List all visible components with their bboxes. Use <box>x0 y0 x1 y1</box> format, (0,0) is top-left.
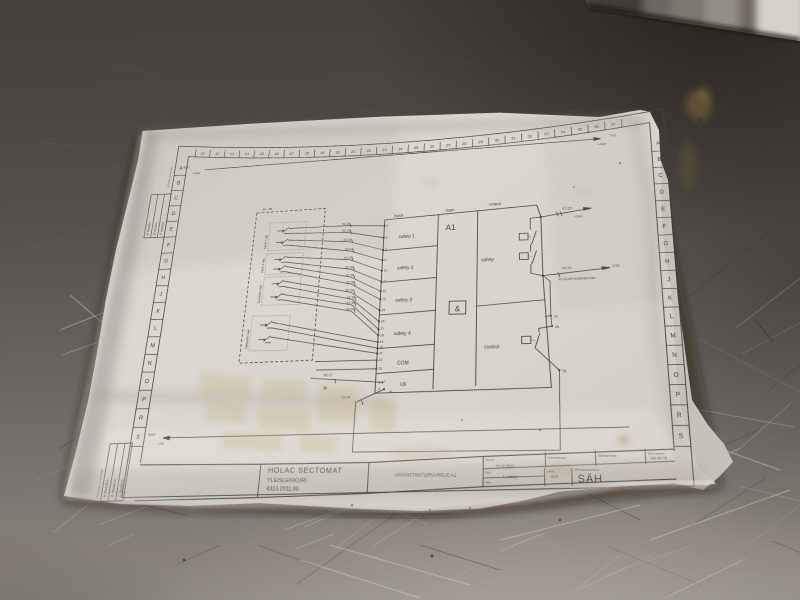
svg-text:33: 33 <box>544 132 549 137</box>
svg-text:SÄH: SÄH <box>577 472 603 486</box>
svg-text:output: output <box>489 201 501 206</box>
svg-text:29: 29 <box>478 140 483 145</box>
svg-text:C: C <box>658 172 664 178</box>
svg-text:X2 33: X2 33 <box>344 255 354 260</box>
svg-text:N: N <box>672 351 677 358</box>
svg-text:X2 31: X2 31 <box>343 237 353 242</box>
svg-text:VAHVISTIN/TURVARELE A1: VAHVISTIN/TURVARELE A1 <box>395 472 457 478</box>
svg-text:COM: COM <box>397 361 409 366</box>
svg-text:D: D <box>659 189 664 195</box>
svg-text:22: 22 <box>366 149 371 153</box>
svg-text:G: G <box>663 240 669 246</box>
svg-text:Suunn: Suunn <box>485 459 495 462</box>
svg-text:X2 40: X2 40 <box>345 306 355 311</box>
svg-text:17: 17 <box>289 152 294 156</box>
svg-text:O: O <box>673 371 679 378</box>
svg-text:M: M <box>670 332 676 339</box>
svg-text:L: L <box>670 313 675 320</box>
svg-text:34: 34 <box>561 130 566 135</box>
svg-text:A: A <box>656 140 660 146</box>
svg-text:16: 16 <box>274 152 279 156</box>
svg-text:15: 15 <box>259 152 264 156</box>
svg-text:1/16: 1/16 <box>612 263 620 268</box>
svg-text:27: 27 <box>446 143 451 148</box>
svg-text:X2 35: X2 35 <box>345 272 355 277</box>
svg-text:32: 32 <box>527 134 532 139</box>
svg-text:control: control <box>484 344 499 350</box>
svg-text:E: E <box>661 206 666 212</box>
svg-text:X2 29: X2 29 <box>342 221 351 226</box>
svg-text:safety 3: safety 3 <box>395 298 412 303</box>
svg-text:R: R <box>677 412 682 419</box>
svg-text:A1: A1 <box>445 224 456 233</box>
svg-text:36: 36 <box>594 125 599 130</box>
svg-text:X2 39: X2 39 <box>346 300 356 305</box>
svg-text:X2 36: X2 36 <box>346 280 356 285</box>
svg-text:&: & <box>455 306 460 314</box>
svg-text:11: 11 <box>200 151 205 155</box>
svg-text:5/37: 5/37 <box>183 165 190 169</box>
svg-text:35: 35 <box>577 127 582 132</box>
svg-text:26: 26 <box>430 144 435 149</box>
svg-text:X2 44: X2 44 <box>341 394 351 399</box>
svg-text:S: S <box>678 432 683 439</box>
svg-text:6/14: 6/14 <box>551 475 559 479</box>
svg-text:K: K <box>668 294 673 301</box>
svg-text:12: 12 <box>215 151 220 155</box>
svg-text:31: 31 <box>511 136 516 141</box>
svg-text:5/37: 5/37 <box>148 432 156 437</box>
svg-text:37: 37 <box>611 122 616 127</box>
svg-text:X2 34: X2 34 <box>345 265 355 270</box>
svg-text:J: J <box>667 276 671 282</box>
svg-text:X2 38: X2 38 <box>346 295 356 300</box>
svg-text:28: 28 <box>462 141 467 146</box>
svg-text:input: input <box>394 213 403 218</box>
svg-text:Kokonaisuus: Kokonaisuus <box>547 457 567 460</box>
svg-text:14: 14 <box>244 152 249 156</box>
svg-text:4313.2011.00: 4313.2011.00 <box>266 485 300 492</box>
svg-text:H: H <box>665 258 670 264</box>
svg-text:T. Laitala: T. Laitala <box>502 475 517 480</box>
svg-text:B: B <box>657 156 661 162</box>
svg-text:19: 19 <box>320 151 325 155</box>
svg-text:safety: safety <box>481 257 494 262</box>
svg-text:25: 25 <box>414 146 419 151</box>
svg-text:YLEISLEIKKURI: YLEISLEIKKURI <box>267 476 307 483</box>
svg-text:U6: U6 <box>400 382 407 387</box>
svg-text:Sähköpositio: Sähköpositio <box>598 454 618 458</box>
svg-text:+24V: +24V <box>574 214 583 219</box>
svg-text:-0V: -0V <box>158 441 165 446</box>
svg-text:Piirt: Piirt <box>485 471 491 475</box>
svg-text:24: 24 <box>398 147 403 151</box>
svg-text:21: 21 <box>351 150 356 154</box>
svg-text:safety 1: safety 1 <box>398 234 414 239</box>
svg-text:HOLAC SECTOMAT: HOLAC SECTOMAT <box>268 467 344 476</box>
svg-text:X2 32: X2 32 <box>344 247 354 252</box>
svg-text:safety 4: safety 4 <box>394 331 411 336</box>
svg-text:18: 18 <box>305 151 310 155</box>
svg-text:X2 37: X2 37 <box>345 288 355 293</box>
svg-text:30: 30 <box>495 138 500 143</box>
svg-text:14.10.2019: 14.10.2019 <box>496 464 515 468</box>
svg-text:20: 20 <box>335 150 340 154</box>
svg-text:X2 30: X2 30 <box>342 228 351 233</box>
svg-text:safety 2: safety 2 <box>397 265 414 270</box>
svg-text:-S1...S8: -S1...S8 <box>261 208 273 212</box>
svg-text:X2 27: X2 27 <box>323 372 333 377</box>
svg-text:+24V: +24V <box>597 142 606 147</box>
svg-text:Työnumero: Työnumero <box>647 452 665 456</box>
svg-text:P: P <box>675 391 680 398</box>
svg-text:13: 13 <box>230 152 235 156</box>
svg-text:+24V: +24V <box>192 171 200 176</box>
svg-text:logic: logic <box>446 208 455 213</box>
svg-text:23: 23 <box>382 148 387 152</box>
svg-text:X2 25: X2 25 <box>562 206 572 211</box>
svg-text:146 46 76: 146 46 76 <box>650 457 668 462</box>
svg-text:F: F <box>662 223 667 229</box>
svg-text:X2 23: X2 23 <box>562 265 573 270</box>
svg-text:Lehti: Lehti <box>547 469 555 473</box>
svg-text:7/11: 7/11 <box>609 133 617 138</box>
